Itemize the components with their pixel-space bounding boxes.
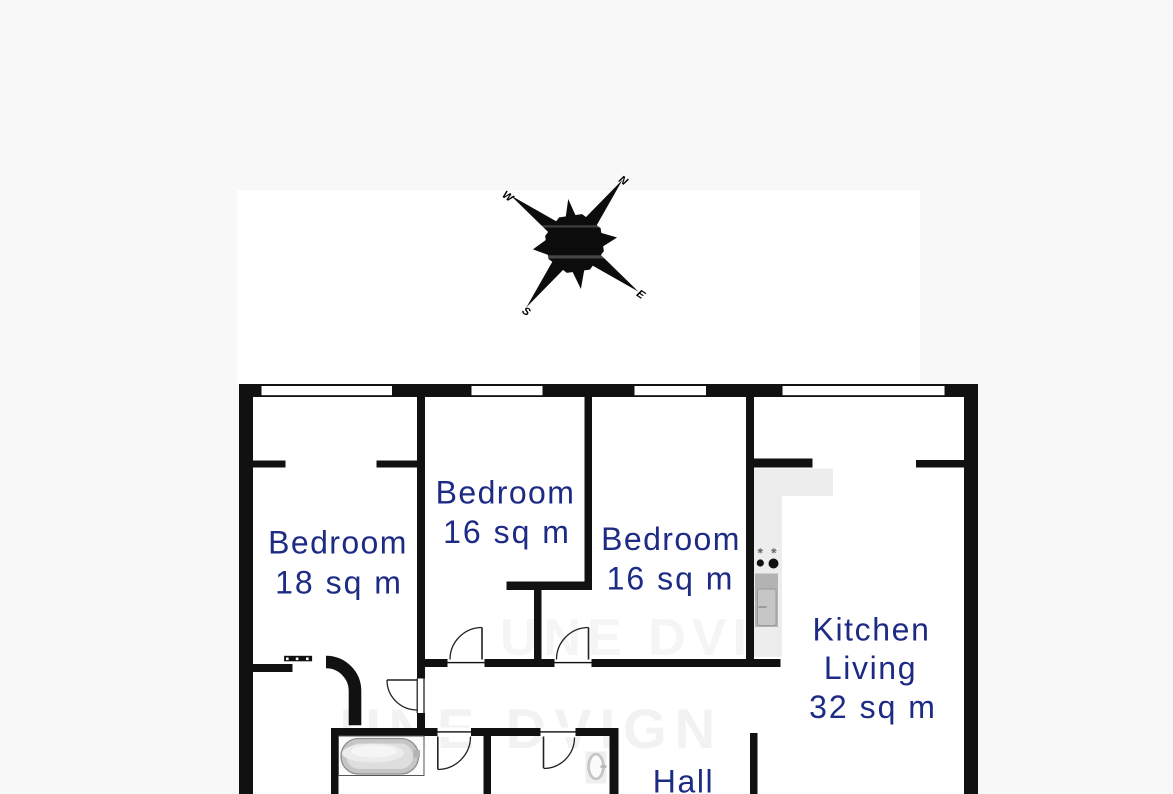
svg-text:Bedroom: Bedroom — [436, 475, 576, 511]
svg-text:Kitchen: Kitchen — [813, 612, 931, 648]
svg-text:18 sq m: 18 sq m — [275, 565, 403, 601]
svg-text:Hall: Hall — [653, 764, 715, 794]
svg-text:32 sq m: 32 sq m — [809, 689, 937, 725]
svg-text:16 sq m: 16 sq m — [443, 514, 571, 550]
svg-text:Bedroom: Bedroom — [268, 525, 408, 561]
svg-text:Living: Living — [824, 650, 917, 686]
svg-text:16 sq m: 16 sq m — [607, 561, 735, 597]
svg-text:Bedroom: Bedroom — [601, 521, 741, 557]
